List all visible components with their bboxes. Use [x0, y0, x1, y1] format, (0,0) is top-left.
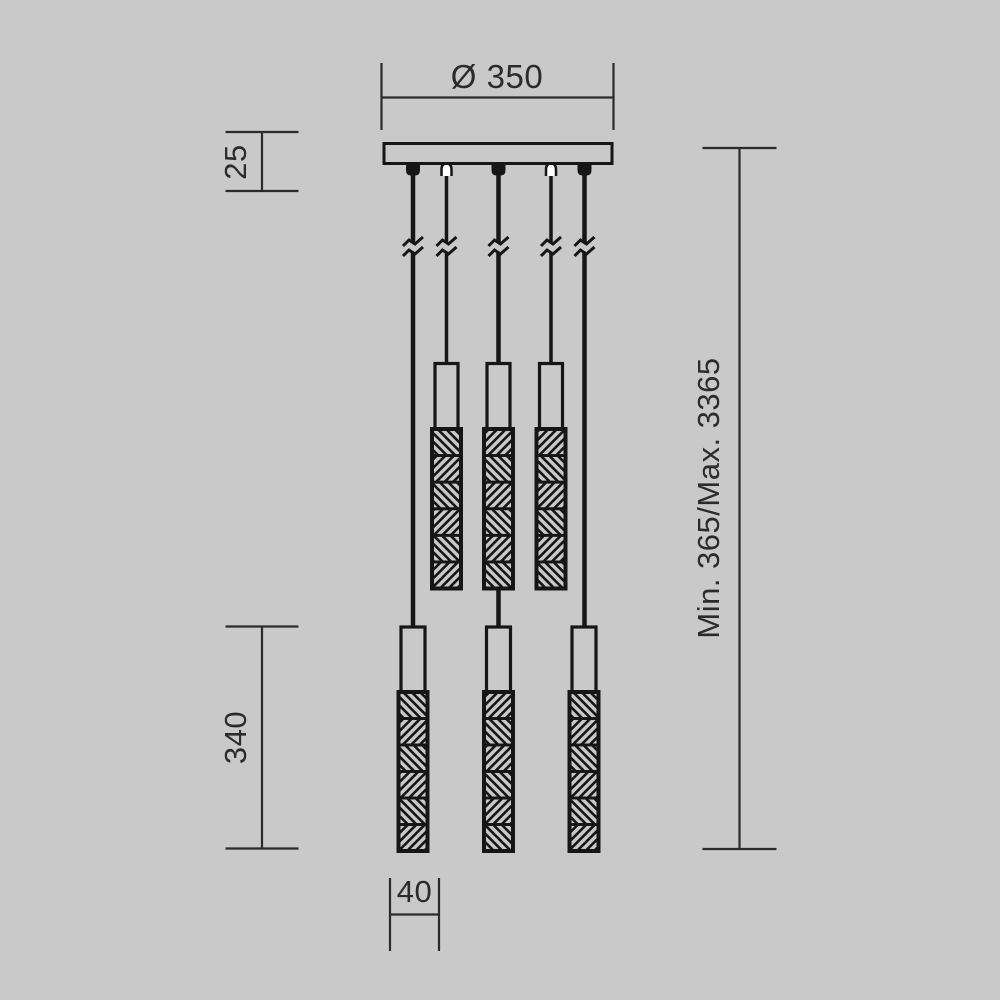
- pendant-socket-tube: [540, 364, 563, 430]
- upper-pendant-2: [484, 364, 513, 589]
- crystal-segment: [570, 825, 599, 852]
- solid-grip-icon: [406, 164, 420, 176]
- pendant-socket-tube: [435, 364, 458, 430]
- canopy-height-label: 25: [218, 144, 253, 179]
- crystal-segment: [484, 719, 513, 746]
- crystal-segment: [432, 482, 461, 509]
- crystal-segment: [537, 456, 566, 483]
- drawing-canvas: Ø 350 25 340 Min. 365/Max. 3365 40: [0, 0, 1000, 1000]
- crystal-segment: [484, 562, 513, 589]
- crystal-segment: [399, 719, 428, 746]
- crystal-segment: [399, 798, 428, 825]
- crystal-segment: [399, 825, 428, 852]
- dimension-canopy-height: 25: [218, 132, 299, 191]
- dimension-pendant-length: 340: [218, 627, 299, 849]
- crystal-segment: [537, 482, 566, 509]
- pendant-light-dimension-drawing: Ø 350 25 340 Min. 365/Max. 3365 40: [0, 0, 1000, 1000]
- pendant-length-label: 340: [218, 711, 253, 764]
- crystal-segment: [484, 456, 513, 483]
- crystal-segment: [484, 429, 513, 456]
- lower-pendant-3: [570, 627, 599, 851]
- upper-pendant-1: [432, 364, 461, 589]
- ceiling-canopy: [384, 144, 612, 164]
- dimension-pendant-width: 40: [390, 874, 439, 951]
- crystal-segment: [399, 772, 428, 799]
- hollow-grip-icon: [546, 164, 556, 177]
- crystal-segment: [484, 745, 513, 772]
- crystal-segment: [537, 509, 566, 536]
- crystal-segment: [484, 772, 513, 799]
- pendant-width-label: 40: [397, 874, 432, 909]
- pendant-socket-tube: [487, 364, 510, 430]
- crystal-segment: [570, 745, 599, 772]
- crystal-segment: [432, 429, 461, 456]
- crystal-segment: [484, 482, 513, 509]
- lower-pendant-1: [399, 627, 428, 851]
- crystal-segment: [537, 429, 566, 456]
- crystal-segment: [570, 692, 599, 719]
- crystal-segment: [432, 535, 461, 562]
- canopy-cord-grips: [406, 164, 592, 177]
- crystal-segment: [570, 719, 599, 746]
- pendant-socket-tube: [401, 627, 425, 692]
- solid-grip-icon: [492, 164, 506, 176]
- canopy-diameter-label: Ø 350: [451, 58, 543, 95]
- crystal-segment: [484, 798, 513, 825]
- crystal-segment: [432, 456, 461, 483]
- lower-pendant-2: [484, 627, 513, 851]
- crystal-segment: [432, 562, 461, 589]
- pendant-socket-tube: [487, 627, 511, 692]
- crystal-segment: [484, 509, 513, 536]
- crystal-segment: [537, 562, 566, 589]
- suspension-height-label: Min. 365/Max. 3365: [691, 357, 726, 638]
- crystal-segment: [537, 535, 566, 562]
- dimension-suspension-height: Min. 365/Max. 3365: [691, 148, 777, 849]
- solid-grip-icon: [578, 164, 592, 176]
- crystal-segment: [399, 692, 428, 719]
- crystal-segment: [432, 509, 461, 536]
- dimension-canopy-diameter: Ø 350: [382, 58, 614, 130]
- hollow-grip-icon: [442, 164, 452, 177]
- crystal-segment: [484, 535, 513, 562]
- crystal-segment: [570, 798, 599, 825]
- pendant-socket-tube: [572, 627, 596, 692]
- crystal-segment: [484, 692, 513, 719]
- crystal-segment: [570, 772, 599, 799]
- crystal-segment: [484, 825, 513, 852]
- crystal-segment: [399, 745, 428, 772]
- upper-pendant-3: [537, 364, 566, 589]
